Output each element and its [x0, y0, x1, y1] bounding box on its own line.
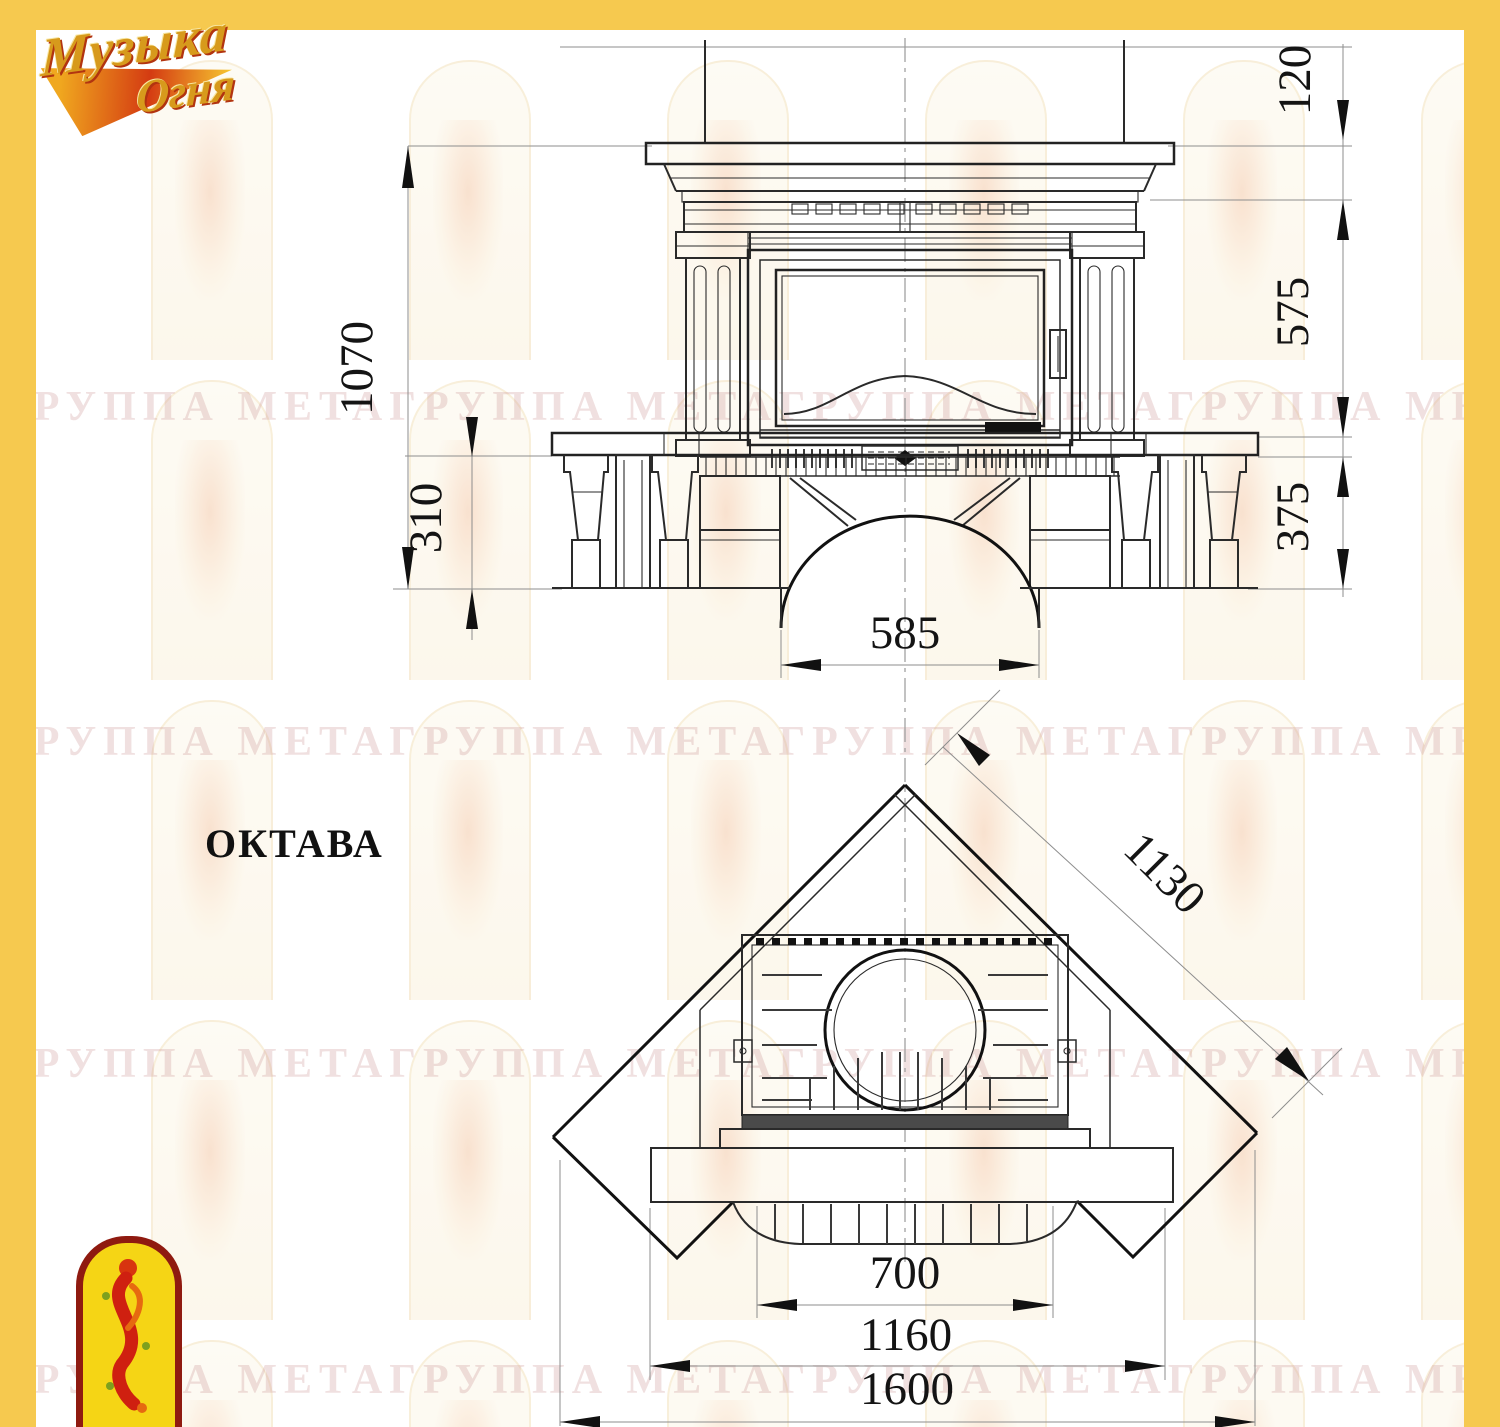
dim-label-diagonal: 1130 — [1114, 822, 1216, 924]
dim-label-top: 120 — [1269, 45, 1321, 116]
border-left — [0, 0, 36, 1427]
hearth-platform — [651, 1148, 1173, 1202]
dim-label-plinth-height: 310 — [400, 483, 452, 554]
dim-label-inner-width: 1160 — [860, 1309, 952, 1361]
fire-dancer-icon — [76, 1236, 176, 1427]
brand-logo: Музыка Огня — [18, 6, 288, 141]
extension-lines — [393, 38, 1352, 1426]
vent-grille — [772, 446, 1048, 470]
firebox-door — [748, 250, 1072, 445]
border-right — [1464, 0, 1500, 1427]
dim-label-overall-width: 1600 — [860, 1363, 954, 1415]
hearth-grate-bars — [775, 1204, 1027, 1244]
right-pedestal — [1112, 455, 1246, 588]
dim-label-middle: 575 — [1267, 277, 1319, 348]
model-title: ОКТАВА — [205, 820, 384, 867]
dim-label-bottom: 375 — [1267, 482, 1319, 553]
left-column — [676, 232, 750, 456]
technical-drawing: 1070 310 120 575 375 585 1130 700 1160 1… — [0, 0, 1500, 1427]
left-pedestal — [564, 455, 698, 588]
dim-label-total-height: 1070 — [331, 321, 383, 415]
catalog-page: ГРУППА МЕТАГРУППА МЕТАГРУППА МЕТАГРУППА … — [0, 0, 1500, 1427]
dim-label-firebox-width: 700 — [870, 1247, 941, 1299]
dim-label-arch-width: 585 — [870, 607, 941, 659]
right-column — [1070, 232, 1144, 456]
dimension-arrows — [402, 100, 1349, 1427]
meta-arch-logo-icon — [76, 1236, 176, 1427]
frieze-ornament — [792, 202, 1028, 232]
